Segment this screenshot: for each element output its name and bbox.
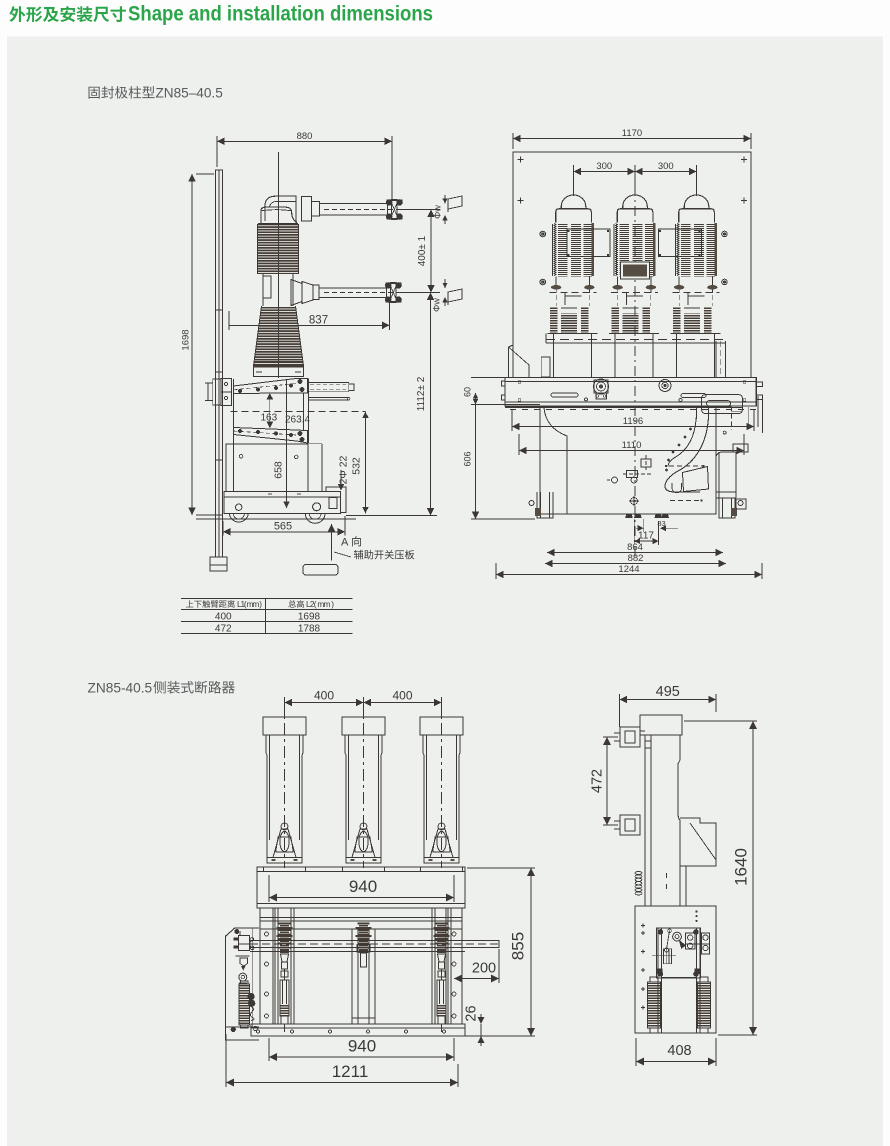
svg-text:1170: 1170 (622, 128, 642, 139)
svg-text:940: 940 (348, 1037, 376, 1056)
svg-text:532: 532 (351, 457, 363, 475)
svg-text:26: 26 (464, 1005, 480, 1021)
svg-text:880: 880 (297, 131, 313, 142)
svg-text:1211: 1211 (332, 1062, 369, 1081)
svg-text:1698: 1698 (298, 611, 321, 622)
svg-text:472: 472 (215, 623, 232, 634)
svg-text:400: 400 (392, 689, 412, 703)
svg-text:300: 300 (658, 161, 674, 172)
svg-text:408: 408 (667, 1043, 691, 1059)
svg-text:472: 472 (590, 769, 606, 793)
svg-text:1110: 1110 (622, 440, 642, 451)
svg-text:200: 200 (472, 961, 496, 977)
svg-text:400: 400 (215, 611, 232, 622)
svg-text:263.4: 263.4 (285, 414, 310, 425)
svg-text:300: 300 (596, 161, 612, 172)
svg-text:L1( mm ): L1( mm ) (237, 599, 262, 609)
svg-text:ZN85-40.5: ZN85-40.5 (88, 680, 153, 695)
svg-text:837: 837 (309, 314, 328, 326)
svg-text:60: 60 (463, 387, 473, 397)
svg-text:1196: 1196 (623, 416, 643, 427)
svg-text:1112± 2: 1112± 2 (416, 376, 427, 411)
svg-text:1698: 1698 (181, 329, 192, 350)
svg-text:606: 606 (463, 451, 473, 466)
svg-text:882: 882 (628, 553, 644, 564)
svg-text:ZN85–40.5: ZN85–40.5 (156, 86, 223, 101)
svg-text:117: 117 (638, 531, 654, 542)
svg-text:1244: 1244 (618, 564, 639, 575)
svg-text:855: 855 (509, 932, 528, 960)
svg-text:1640: 1640 (732, 848, 751, 886)
svg-text:L2( mm ): L2( mm ) (306, 599, 334, 609)
svg-text:658: 658 (272, 461, 284, 479)
svg-text:565: 565 (274, 520, 292, 532)
svg-text:A: A (341, 537, 349, 549)
svg-text:2Φ 22: 2Φ 22 (338, 455, 350, 484)
svg-text:Shape and installation dimensi: Shape and installation dimensions (128, 3, 433, 26)
svg-text:864: 864 (627, 542, 643, 553)
svg-text:940: 940 (349, 877, 377, 896)
svg-text:Φw: Φw (433, 205, 443, 219)
svg-text:400: 400 (314, 689, 334, 703)
svg-text:1788: 1788 (298, 623, 321, 634)
svg-text:400± 1: 400± 1 (417, 235, 428, 266)
svg-text:495: 495 (656, 684, 680, 700)
